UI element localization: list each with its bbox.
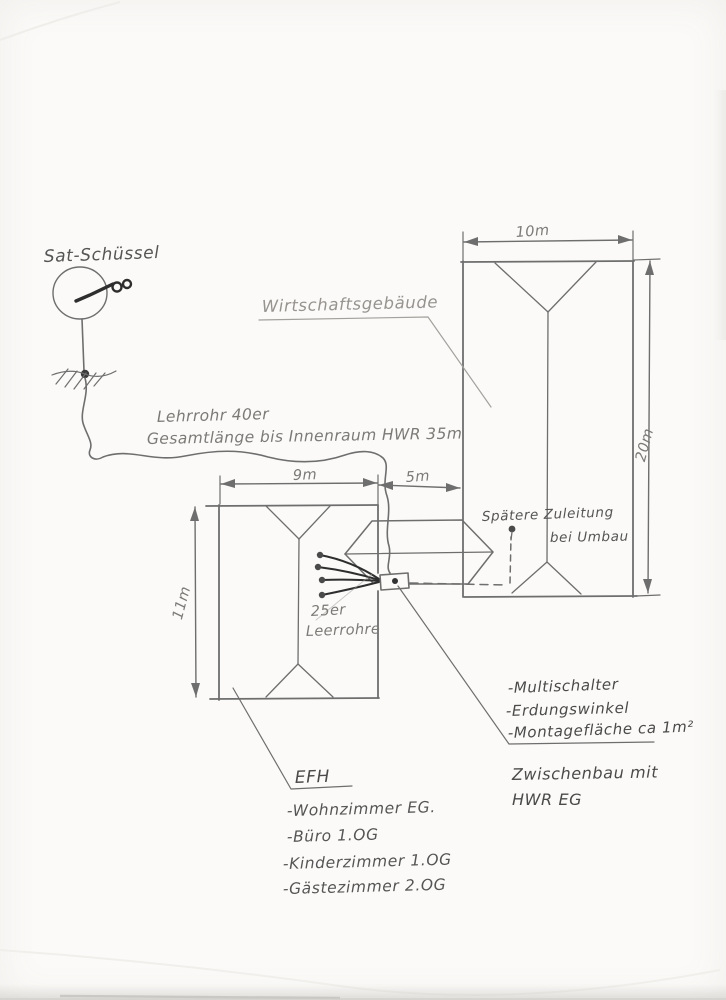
arrowhead-down	[643, 579, 652, 593]
lnb-head-1	[113, 283, 122, 292]
label-efh-room-2: -Kinderzimmer 1.OG	[283, 851, 452, 873]
label-efh-room-1: -Büro 1.OG	[287, 826, 379, 846]
zwischenbau-outline	[345, 520, 493, 584]
multischalter-dot	[392, 578, 398, 584]
scanned-sketch-page: Sat-Schüssel Lehrrohr 40er Gesamtlänge b…	[0, 0, 726, 1000]
label-efh: EFH	[294, 767, 330, 788]
labels: Sat-Schüssel Lehrrohr 40er Gesamtlänge b…	[43, 223, 694, 898]
label-sat-schuessel: Sat-Schüssel	[43, 243, 159, 267]
arrowhead-up	[645, 261, 654, 275]
arrowhead-up	[190, 507, 199, 521]
label-efh-room-0: -Wohnzimmer EG.	[287, 798, 436, 820]
label-zwischenbau-line2: HWR EG	[512, 790, 582, 809]
conduit-end-dot	[319, 592, 325, 598]
label-zwischenbau-line1: Zwischenbau mit	[511, 762, 659, 784]
dim-label-9m: 9m	[293, 467, 318, 484]
arrowhead-down	[191, 683, 200, 697]
dish-pole	[82, 319, 84, 371]
paper-texture	[0, 2, 726, 995]
dish-circle	[53, 267, 107, 319]
label-conduits-line2: Leerrohre	[306, 621, 381, 640]
label-future-supply-line2: bei Umbau	[550, 529, 629, 546]
efh-roof-lines	[266, 506, 333, 697]
arrowhead-right	[363, 478, 377, 487]
conduit-end-dot	[319, 577, 325, 583]
arrowhead-left	[221, 479, 235, 488]
site-plan-sketch: Sat-Schüssel Lehrrohr 40er Gesamtlänge b…	[0, 0, 726, 1000]
label-equipment-multischalter: -Multischalter	[508, 675, 619, 697]
label-equipment-erdungswinkel: -Erdungswinkel	[506, 699, 630, 720]
dimension-wg-length	[634, 259, 660, 596]
wirtschaftsgebaeude-leader	[259, 317, 491, 407]
conduit-end-dot	[317, 552, 323, 558]
dim-label-20m: 20m	[633, 427, 657, 464]
dimension-efh-length	[190, 507, 200, 697]
label-cable-note-line1: Lehrrohr 40er	[157, 405, 271, 426]
dim-label-11m: 11m	[170, 585, 194, 622]
lnb-head-2	[123, 280, 131, 288]
dim-label-10m: 10m	[515, 223, 550, 241]
arrowhead-left	[464, 237, 478, 246]
label-equipment-montageflaeche: -Montagefläche ca 1m²	[508, 718, 695, 742]
conduit-end-dot	[315, 564, 321, 570]
label-conduits-line1: 25er	[310, 602, 346, 620]
arrowhead-right	[446, 483, 460, 492]
label-wirtschaftsgebaeude: Wirtschaftsgebäude	[262, 292, 439, 316]
multischalter-box	[380, 573, 409, 590]
label-efh-room-3: -Gästezimmer 2.OG	[283, 876, 447, 898]
efh-leader	[233, 688, 352, 789]
ground-symbol	[52, 369, 116, 389]
sat-dish-drawing	[52, 267, 131, 389]
dim-label-5m: 5m	[405, 468, 430, 486]
scan-edge-artifact	[0, 984, 726, 1000]
arrowhead-right	[618, 235, 632, 244]
efh-building-outline	[206, 505, 379, 700]
label-future-supply-line1: Spätere Zuleitung	[482, 504, 614, 525]
label-cable-note-line2: Gesamtlänge bis Innenraum HWR 35m	[147, 424, 463, 448]
